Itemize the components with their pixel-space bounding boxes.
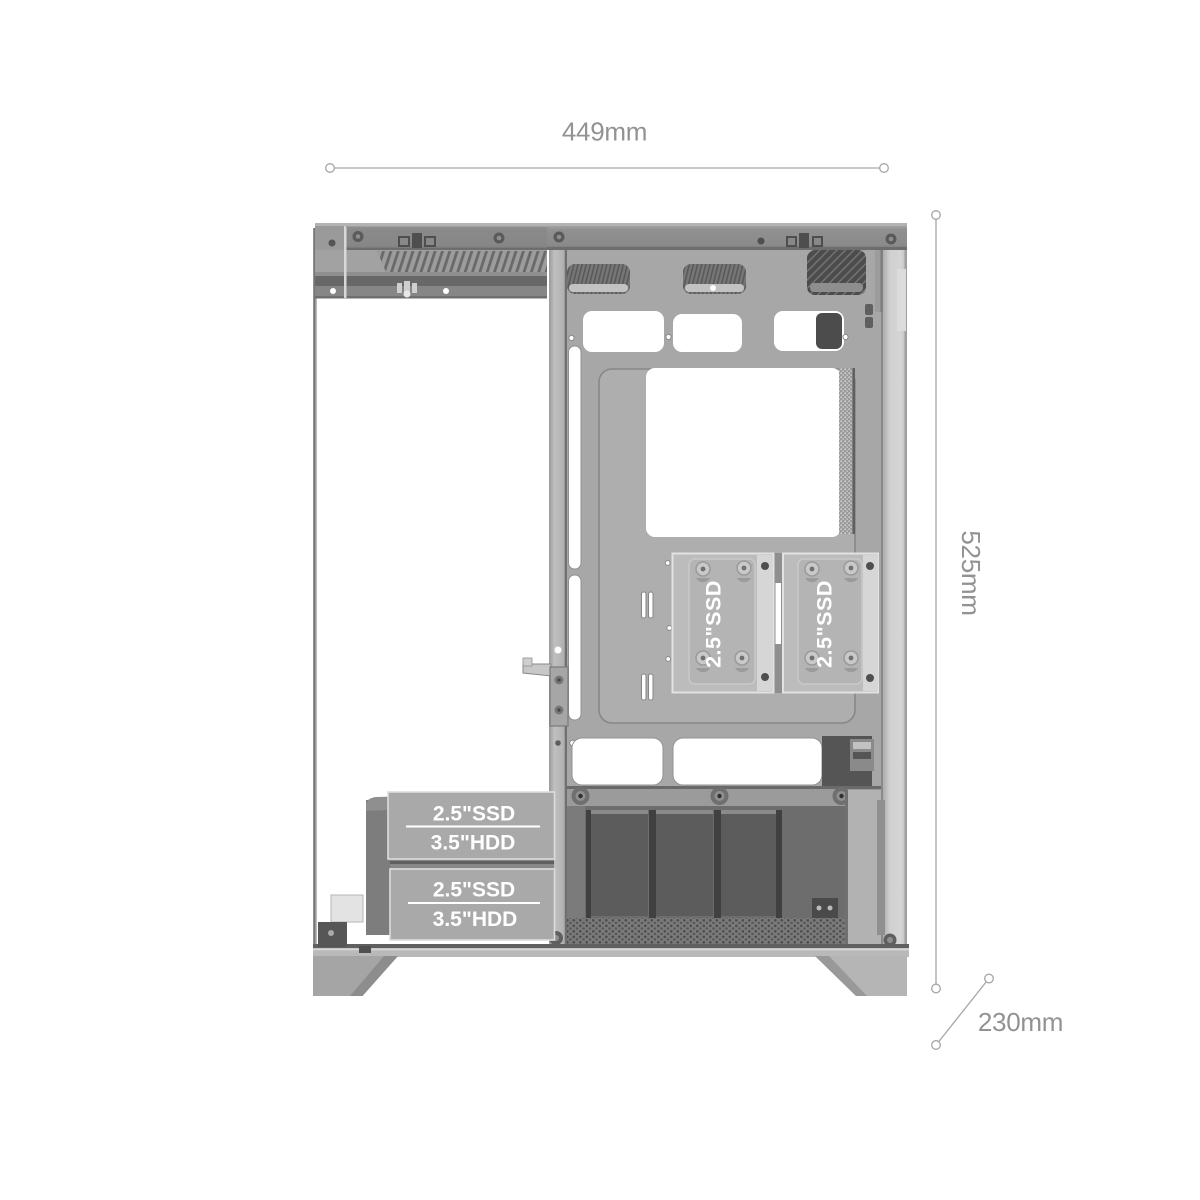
svg-text:525mm: 525mm xyxy=(956,530,986,615)
svg-text:3.5"HDD: 3.5"HDD xyxy=(431,832,516,855)
svg-text:2.5"SSD: 2.5"SSD xyxy=(433,803,515,826)
svg-text:2.5"SSD: 2.5"SSD xyxy=(433,879,515,902)
svg-text:2.5"SSD: 2.5"SSD xyxy=(702,580,726,668)
svg-text:2.5"SSD: 2.5"SSD xyxy=(813,580,837,668)
svg-text:3.5"HDD: 3.5"HDD xyxy=(433,908,518,931)
svg-text:449mm: 449mm xyxy=(562,117,647,147)
svg-text:230mm: 230mm xyxy=(978,1007,1063,1037)
